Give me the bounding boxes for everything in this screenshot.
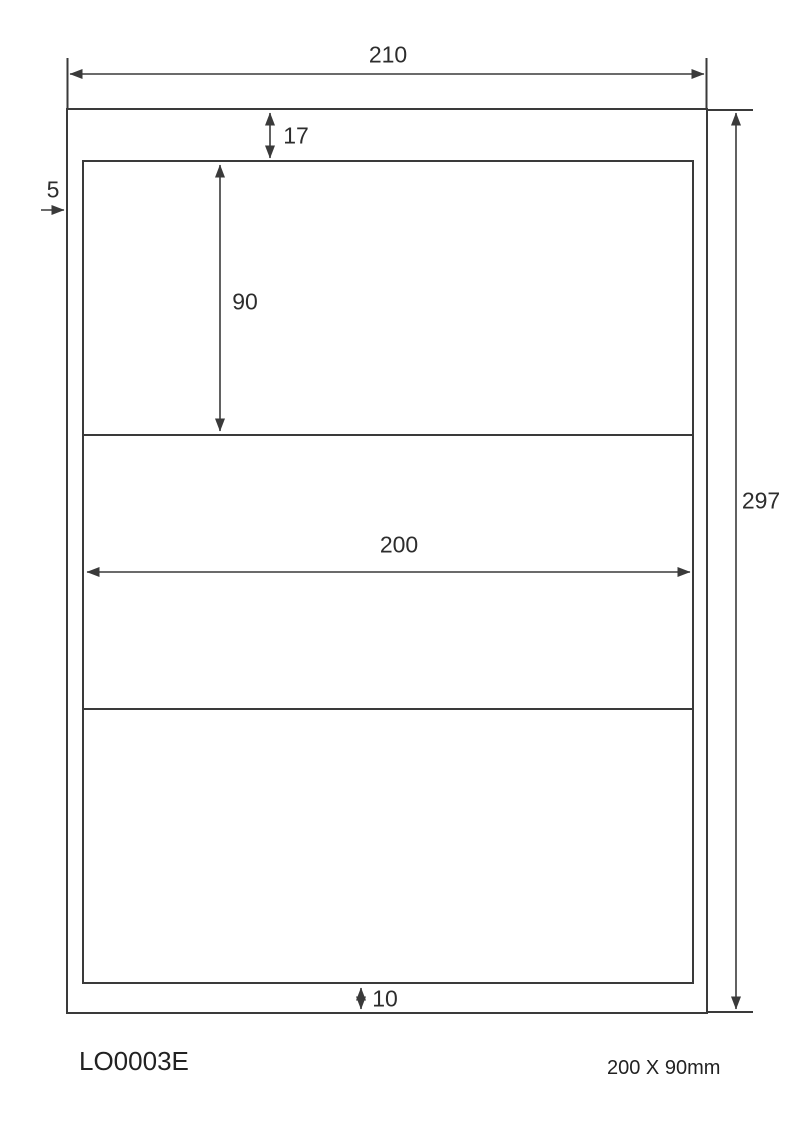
diagram-geometry: [0, 0, 796, 1124]
dim-label-left-margin: 5: [47, 179, 60, 202]
label-sheet-diagram: 210 297 17 90 200 10 5 LO0003E 200 X 90m…: [0, 0, 796, 1124]
label-size-text: 200 X 90mm: [607, 1058, 720, 1078]
dim-label-sheet-height: 297: [742, 490, 780, 513]
dim-label-label-width: 200: [380, 534, 418, 557]
dim-label-label-height: 90: [232, 291, 258, 314]
label-outline-1: [83, 161, 693, 435]
product-code: LO0003E: [79, 1048, 189, 1074]
dim-label-sheet-width: 210: [369, 44, 407, 67]
dim-label-bottom-margin: 10: [372, 988, 398, 1011]
dim-label-top-margin: 17: [283, 125, 309, 148]
label-outline-3: [83, 709, 693, 983]
sheet-outline: [67, 109, 707, 1013]
